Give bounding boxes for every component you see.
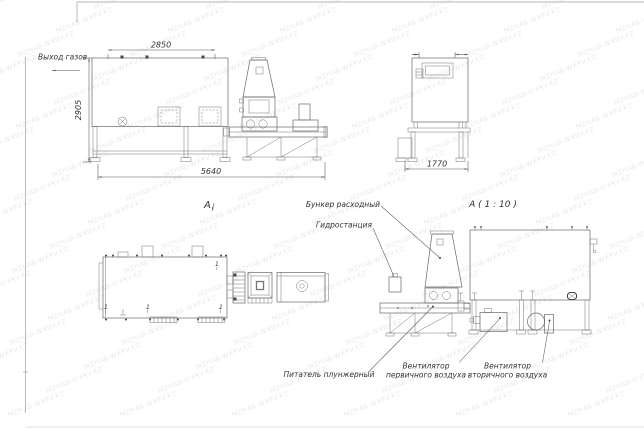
tower-hatch-box — [240, 97, 276, 117]
primary-fan-label-line2: первичного воздуха — [386, 371, 466, 380]
feed-hopper-label: Бункер расходный — [306, 200, 380, 209]
position-mark: 1 — [104, 304, 108, 311]
datum-symbol — [120, 309, 126, 315]
dimension-height: 2905 — [74, 58, 92, 162]
detail-truss — [386, 313, 456, 336]
gas-outlet-annotation: Выход газов — [38, 53, 87, 71]
truss-support — [243, 137, 321, 160]
drawing-sheet: MZHAB-WXRV.KZMZHAB-WXRV.KZMZHAB-WXRV.KZM… — [0, 0, 644, 430]
detail-feeder — [425, 288, 458, 303]
position-mark: 1 — [219, 304, 223, 311]
dim-5640: 5640 — [201, 167, 221, 176]
detail-view-title: А ( 1 : 10 ) — [468, 200, 517, 210]
detail-side-bracket — [590, 239, 597, 253]
plan-body — [103, 257, 227, 318]
end-body — [412, 58, 468, 122]
dimension-top-width: 2850 — [108, 41, 215, 60]
secondary-fan-label-line1: Вентилятор — [484, 362, 531, 371]
detail-conveyor — [380, 301, 470, 313]
view-detail-a: А ( 1 : 10 ) — [284, 200, 597, 380]
secondary-fan-label-line2: вторичного воздуха — [468, 371, 548, 380]
detail-hopper-tower — [425, 231, 462, 287]
lifting-lug — [202, 56, 205, 59]
top-dim-marks — [412, 52, 468, 58]
hopper-tower — [243, 58, 275, 98]
hatch-box-2 — [199, 107, 221, 126]
plan-top-bumps — [118, 246, 203, 257]
position-marks: 1 1 1 1 — [104, 261, 223, 313]
dimension-total-length: 5640 — [98, 162, 325, 180]
detail-body — [470, 226, 597, 300]
plan-bolt-dots — [105, 255, 227, 321]
conveyor — [224, 127, 328, 138]
plunger-feeder-label: Питатель плунжерный — [284, 370, 375, 379]
dim-1770: 1770 — [427, 160, 447, 169]
view-plan: А — [99, 200, 329, 323]
flange-symbol — [568, 293, 577, 300]
lifting-lug — [146, 56, 149, 59]
detail-hydraulic-station — [389, 274, 401, 293]
position-mark: 1 — [215, 261, 219, 268]
plan-view-label: А — [203, 200, 211, 211]
sheet-frame — [23, 2, 644, 427]
dim-2905: 2905 — [74, 100, 83, 120]
furnace-body — [92, 58, 228, 127]
position-mark: 1 — [146, 304, 150, 311]
hydraulic-station-annotation: Гидростанция — [316, 221, 394, 277]
plan-left-bracket — [99, 263, 103, 309]
top-opening — [416, 63, 453, 78]
view-side-elevation: 2850 2905 5640 Выход газов — [38, 41, 328, 181]
hatch-box-1 — [158, 107, 180, 126]
end-support-frame — [396, 128, 470, 162]
lifting-lug — [121, 56, 124, 59]
dim-2850: 2850 — [151, 41, 171, 50]
valve-symbol — [118, 117, 127, 126]
feeder-box — [242, 117, 277, 131]
gas-outlet-label: Выход газов — [38, 53, 87, 62]
anchor-bolts — [414, 122, 466, 128]
detail-primary-fan — [470, 309, 507, 332]
view-end-elevation: 1770 — [396, 52, 470, 172]
hydraulic-station-label: Гидростанция — [316, 221, 373, 230]
support-frame — [90, 127, 230, 162]
plan-feeder-assembly — [227, 272, 329, 303]
drawing-svg: 2850 2905 5640 Выход газов — [0, 0, 644, 430]
detail-top-bolts — [474, 226, 588, 230]
detail-body-support — [458, 291, 591, 334]
primary-fan-label-line1: Вентилятор — [403, 362, 450, 371]
